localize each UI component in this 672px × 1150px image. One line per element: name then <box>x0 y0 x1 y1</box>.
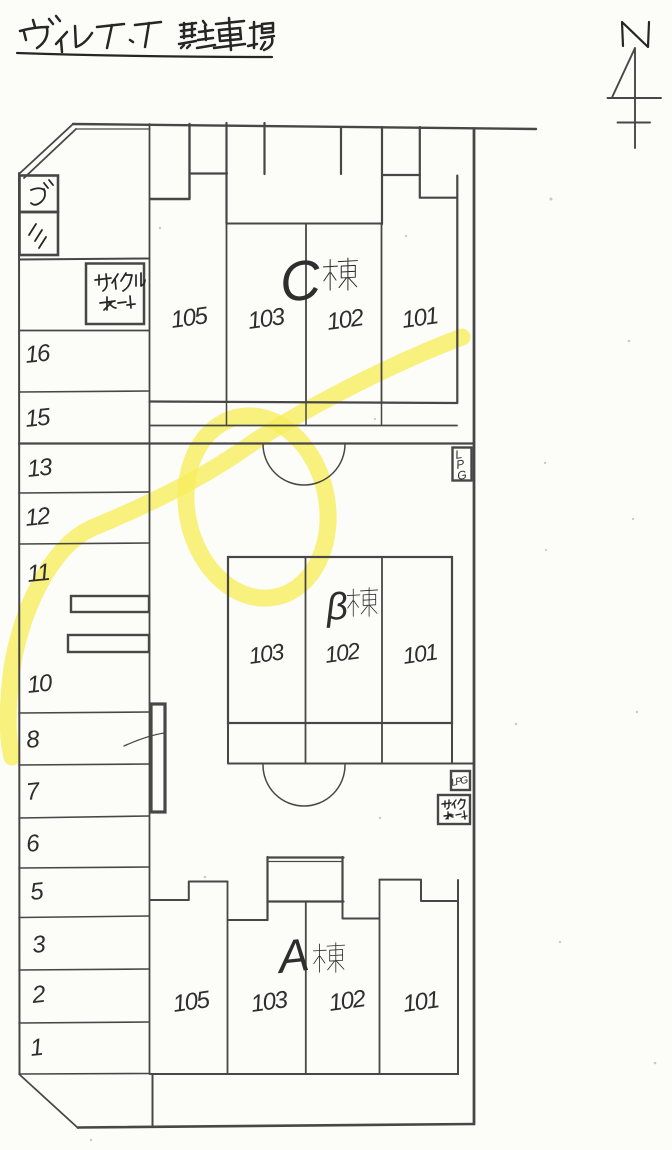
svg-text:12: 12 <box>24 503 52 532</box>
svg-text:105: 105 <box>169 302 210 334</box>
svg-text:102: 102 <box>323 637 362 668</box>
svg-text:102: 102 <box>325 304 365 336</box>
svg-text:105: 105 <box>171 986 212 1018</box>
svg-text:101: 101 <box>401 986 440 1018</box>
svg-text:103: 103 <box>249 986 290 1018</box>
svg-text:101: 101 <box>400 302 439 334</box>
svg-text:β: β <box>324 586 349 629</box>
svg-text:102: 102 <box>327 985 367 1017</box>
svg-text:103: 103 <box>246 303 287 335</box>
svg-text:11: 11 <box>26 559 51 588</box>
svg-text:103: 103 <box>247 638 286 669</box>
svg-text:101: 101 <box>401 638 438 668</box>
